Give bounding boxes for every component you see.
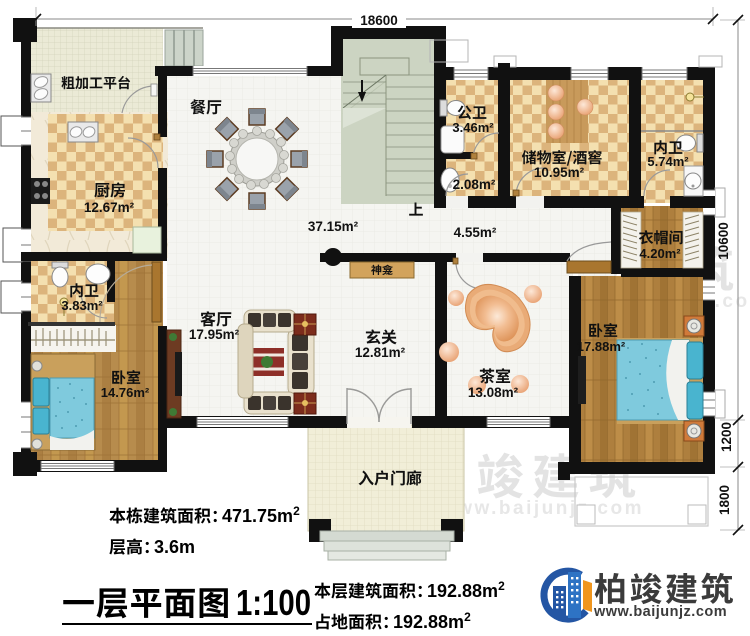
svg-text:1200: 1200 <box>719 422 734 452</box>
svg-text:12.81m²: 12.81m² <box>355 345 406 360</box>
svg-text:192.88m2: 192.88m2 <box>393 610 471 632</box>
svg-text:192.88m2: 192.88m2 <box>427 579 505 601</box>
svg-text:www.baijunjz.com: www.baijunjz.com <box>439 498 644 519</box>
svg-text:10.95m²: 10.95m² <box>534 165 585 180</box>
svg-text:4.55m²: 4.55m² <box>454 225 497 240</box>
svg-text:12.67m²: 12.67m² <box>84 200 135 215</box>
svg-text:37.15m²: 37.15m² <box>308 219 359 234</box>
svg-text:www.baijunjz.com: www.baijunjz.com <box>593 604 727 620</box>
svg-text:2.08m²: 2.08m² <box>453 177 496 192</box>
svg-text:18600: 18600 <box>360 13 398 28</box>
svg-text:17.95m²: 17.95m² <box>189 327 240 342</box>
svg-text:1:100: 1:100 <box>236 582 311 623</box>
svg-text:471.75m2: 471.75m2 <box>222 504 300 526</box>
svg-text:17.88m²: 17.88m² <box>577 339 626 354</box>
svg-text:3.46m²: 3.46m² <box>452 120 494 135</box>
svg-text:4.20m²: 4.20m² <box>639 246 681 261</box>
svg-text:3.6m: 3.6m <box>154 537 195 557</box>
svg-text:5.74m²: 5.74m² <box>647 154 689 169</box>
svg-text:14.76m²: 14.76m² <box>101 385 150 400</box>
svg-text:3.83m²: 3.83m² <box>61 298 103 313</box>
svg-text:13.08m²: 13.08m² <box>468 385 519 400</box>
svg-text:10600: 10600 <box>716 222 731 260</box>
svg-text:1800: 1800 <box>717 485 732 515</box>
